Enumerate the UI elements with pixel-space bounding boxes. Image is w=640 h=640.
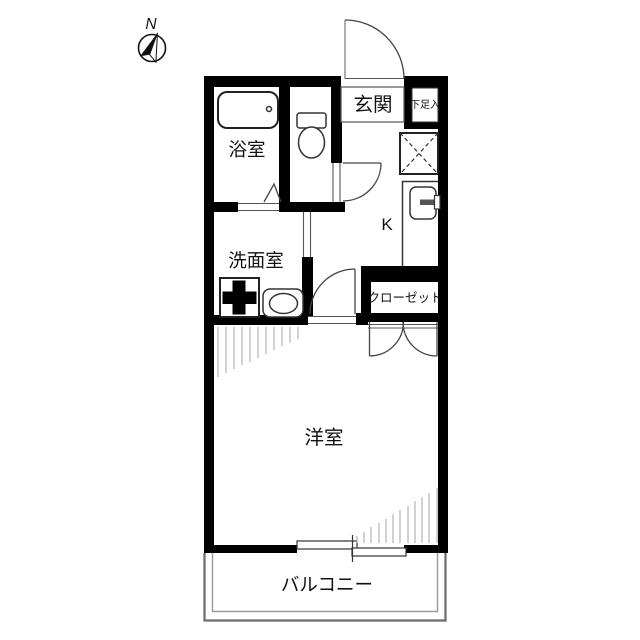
room-label-shoe-cabinet: 下足入 bbox=[410, 99, 440, 111]
room-label-genkan: 玄関 bbox=[353, 94, 392, 116]
ceiling-hatch-upper bbox=[218, 327, 298, 377]
closet-top-wall bbox=[363, 266, 448, 282]
ceiling-hatch-lower bbox=[357, 488, 437, 543]
top-wall-left-segment bbox=[204, 76, 341, 87]
north-arrow: N bbox=[139, 16, 166, 62]
washing-machine-pan-cross-v bbox=[233, 281, 246, 315]
outer-wall-left bbox=[204, 76, 214, 553]
toilet-bowl bbox=[299, 127, 325, 158]
bathtub-faucet bbox=[267, 107, 272, 112]
floorplan-canvas: N bbox=[0, 0, 640, 640]
top-wall-right-segment bbox=[404, 76, 448, 88]
sliding-window-panel-left bbox=[297, 541, 357, 549]
room-label-kitchen: K bbox=[381, 215, 393, 234]
room-label-closet: クローゼット bbox=[367, 291, 442, 305]
room-label-balcony: バルコニー bbox=[281, 574, 373, 595]
closet-bottom-wall bbox=[361, 313, 448, 322]
bottom-wall-right-segment bbox=[404, 545, 448, 553]
closet-door-swing-left bbox=[370, 322, 404, 356]
kitchen-faucet-base bbox=[435, 196, 441, 210]
bathroom-folding-door bbox=[264, 184, 281, 202]
room-label-western-room: 洋室 bbox=[304, 427, 343, 449]
bottom-wall-left-segment bbox=[204, 545, 297, 553]
hall-door-swing bbox=[310, 269, 355, 314]
room-label-bathroom: 浴室 bbox=[228, 139, 265, 160]
entrance-door-swing bbox=[345, 20, 404, 79]
bath-toilet-divider-wall bbox=[279, 87, 290, 212]
sliding-window-panel-right bbox=[352, 548, 406, 556]
toilet-bottom-wall bbox=[279, 202, 345, 212]
room-label-washroom: 洗面室 bbox=[228, 250, 284, 271]
sliding-window bbox=[297, 535, 406, 562]
bathroom-bottom-wall bbox=[204, 202, 238, 212]
closet-door-swing-right bbox=[403, 322, 437, 356]
washbasin-bowl bbox=[270, 294, 298, 314]
toilet-tank bbox=[297, 113, 326, 128]
toilet-door-swing bbox=[343, 163, 381, 201]
toilet-right-wall bbox=[331, 87, 342, 163]
compass-label: N bbox=[145, 16, 157, 33]
shoe-cabinet-bottom-wall bbox=[404, 122, 448, 129]
